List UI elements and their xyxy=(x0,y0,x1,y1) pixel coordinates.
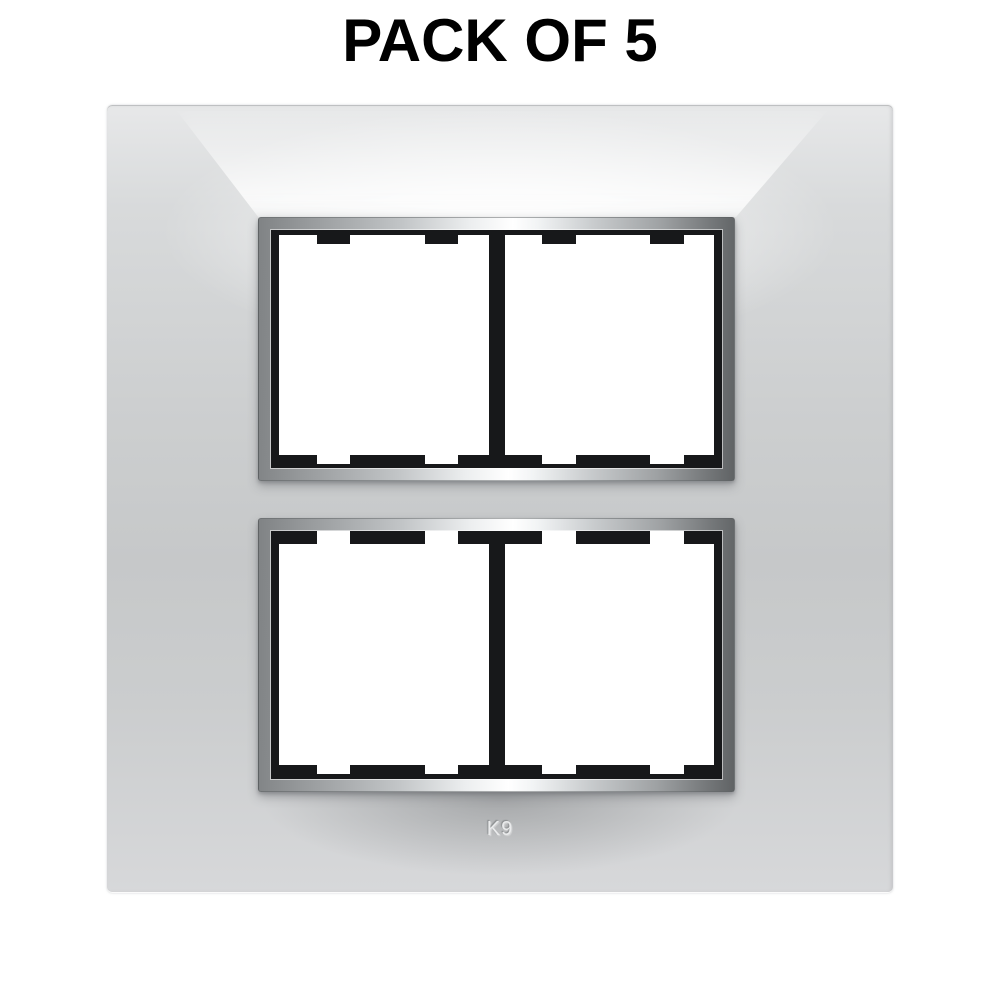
module-notch xyxy=(650,455,684,464)
module-window xyxy=(279,544,489,765)
module-notch xyxy=(650,531,684,544)
module-notch xyxy=(542,531,576,544)
bottom-module-frame xyxy=(271,531,722,779)
top-aperture-frame xyxy=(258,217,735,481)
module-notch xyxy=(317,455,351,464)
module-tab xyxy=(650,235,684,244)
module-window xyxy=(505,235,715,455)
bottom-aperture-frame xyxy=(258,518,735,792)
module-notch xyxy=(650,765,684,774)
pack-quantity-title: PACK OF 5 xyxy=(0,8,1000,74)
module-notch xyxy=(317,765,351,774)
module-notch xyxy=(425,455,459,464)
module-tab xyxy=(425,235,459,244)
product-image: PACK OF 5 xyxy=(0,0,1000,1000)
module-notch xyxy=(317,531,351,544)
switch-plate: K9 xyxy=(107,105,893,893)
module-tab xyxy=(317,235,351,244)
top-module-frame xyxy=(271,230,722,468)
module-notch xyxy=(425,531,459,544)
module-notch xyxy=(542,765,576,774)
module-window xyxy=(279,235,489,455)
light-glow xyxy=(177,111,827,217)
module-notch xyxy=(425,765,459,774)
module-notch xyxy=(542,455,576,464)
brand-label: K9 xyxy=(107,818,893,841)
module-window xyxy=(505,544,715,765)
module-tab xyxy=(542,235,576,244)
